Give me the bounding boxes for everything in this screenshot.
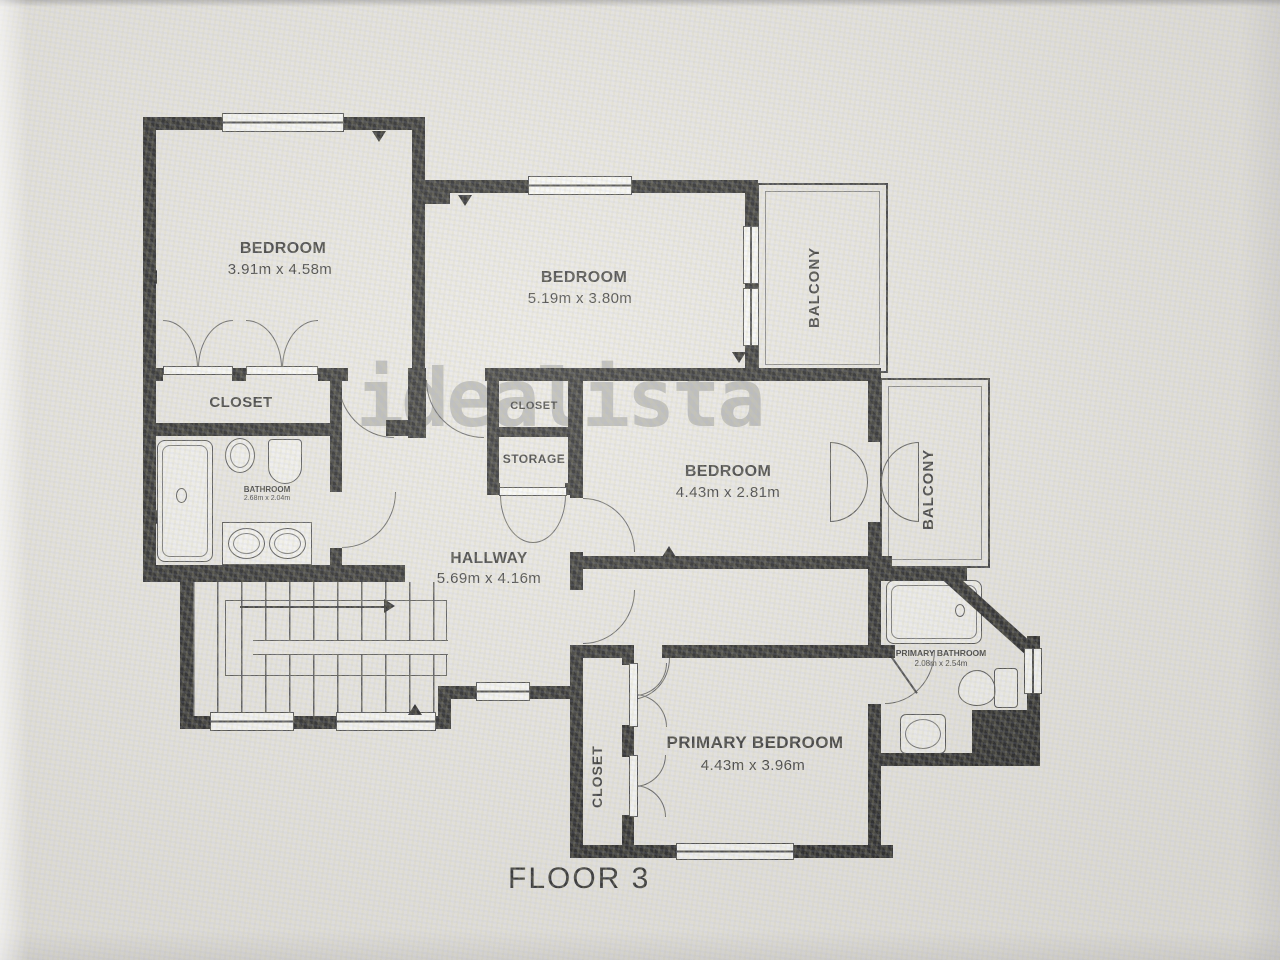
door-panel (163, 366, 233, 375)
room-dims-bedroom-top-mid: 5.19m x 3.80m (528, 290, 632, 307)
wall (143, 423, 342, 436)
bifold-door-arc (198, 320, 233, 368)
sink-icon (225, 438, 255, 473)
wall (485, 368, 880, 381)
sink-icon (228, 528, 265, 559)
room-dims-bedroom-right: 4.43m x 2.81m (676, 484, 780, 501)
toilet-tank-icon (994, 668, 1018, 708)
door-swing-arc (342, 492, 396, 548)
arrow-marker-icon (800, 846, 814, 857)
floorplan-photo: { "floor_label": "FLOOR 3", "watermark":… (0, 0, 1280, 960)
bifold-door-arc (634, 694, 667, 727)
bifold-door-arc (634, 663, 667, 696)
door-swing-arc (583, 590, 635, 644)
sink-icon (269, 528, 306, 559)
room-dims-hallway: 5.69m x 4.16m (437, 570, 541, 587)
floorplan: idealista (0, 0, 1280, 960)
window (1024, 648, 1042, 694)
double-door-arc (533, 495, 566, 543)
room-label-bathroom: BATHROOM (244, 485, 291, 494)
wall (622, 815, 634, 858)
wall (570, 556, 892, 569)
arrow-marker-icon (662, 546, 676, 557)
window (222, 113, 344, 132)
wall (570, 645, 583, 858)
wall (386, 420, 426, 436)
bidet-icon (900, 714, 946, 754)
balcony-door-leaf (830, 442, 868, 522)
door-panel (629, 663, 638, 727)
room-label-bedroom-top-left: BEDROOM (240, 240, 326, 258)
door-panel (629, 755, 638, 817)
room-label-closet-mid: CLOSET (510, 400, 558, 412)
room-label-primary-bedroom: PRIMARY BEDROOM (667, 733, 844, 753)
staircase-direction-line (240, 606, 386, 608)
room-label-closet-primary: CLOSET (589, 698, 605, 808)
room-label-closet-left: CLOSET (209, 394, 272, 411)
window (476, 682, 530, 701)
window (210, 712, 294, 731)
room-label-bedroom-top-mid: BEDROOM (541, 269, 627, 287)
balcony-door-window (743, 288, 759, 346)
wall (487, 427, 580, 437)
room-label-storage: STORAGE (503, 452, 566, 466)
staircase-rail (253, 640, 448, 655)
toilet-icon (958, 670, 996, 706)
room-dims-primary-bedroom: 4.43m x 3.96m (701, 757, 805, 774)
wall (622, 725, 634, 757)
bidet-inner (905, 719, 941, 749)
wall (412, 117, 425, 380)
room-label-bedroom-right: BEDROOM (685, 463, 771, 481)
room-dims-bedroom-top-left: 3.91m x 4.58m (228, 261, 332, 278)
room-dims-bathroom: 2.68m x 2.04m (244, 495, 290, 502)
window (528, 176, 632, 195)
wall (570, 645, 630, 658)
bifold-door-arc (634, 785, 666, 817)
bifold-door-arc (246, 320, 282, 368)
bifold-door-arc (282, 320, 318, 368)
door-panel (499, 487, 567, 496)
wall (868, 704, 881, 858)
wall (232, 368, 246, 381)
double-door-arc (500, 495, 533, 543)
arrow-marker-icon (146, 510, 157, 524)
arrow-marker-icon (732, 352, 746, 363)
bathtub-drain-icon (955, 604, 965, 617)
room-label-balcony-top: BALCONY (806, 228, 823, 328)
wall (143, 368, 163, 381)
wall (662, 645, 895, 658)
sink-inner (230, 443, 250, 468)
door-swing-arc (583, 498, 635, 552)
wall (180, 574, 193, 729)
door-panel (246, 366, 318, 375)
sink-inner (233, 533, 260, 554)
room-label-balcony-right: BALCONY (920, 430, 937, 530)
wall (972, 710, 1034, 760)
arrow-marker-icon (408, 704, 422, 715)
toilet-icon (268, 439, 302, 484)
arrow-marker-icon (372, 131, 386, 142)
arrow-marker-icon (458, 195, 472, 206)
window (676, 843, 794, 860)
arrow-marker-icon (146, 270, 157, 284)
bathtub-drain-icon (176, 488, 187, 503)
room-dims-primary-bathroom: 2.08m x 2.54m (915, 659, 968, 668)
floor-title: FLOOR 3 (508, 862, 650, 896)
staircase-void (225, 600, 447, 676)
wall (425, 180, 450, 204)
wall (868, 368, 881, 442)
bifold-door-arc (634, 755, 666, 787)
room-label-primary-bathroom: PRIMARY BATHROOM (896, 648, 987, 658)
staircase-direction-arrow-icon (384, 599, 395, 613)
wall (570, 368, 583, 498)
balcony-door-window (743, 226, 759, 284)
arrow-marker-icon (832, 648, 846, 659)
wall (622, 645, 634, 665)
bifold-door-arc (163, 320, 198, 368)
sink-inner (274, 533, 301, 554)
room-label-hallway: HALLWAY (450, 550, 527, 568)
wall (330, 368, 342, 492)
